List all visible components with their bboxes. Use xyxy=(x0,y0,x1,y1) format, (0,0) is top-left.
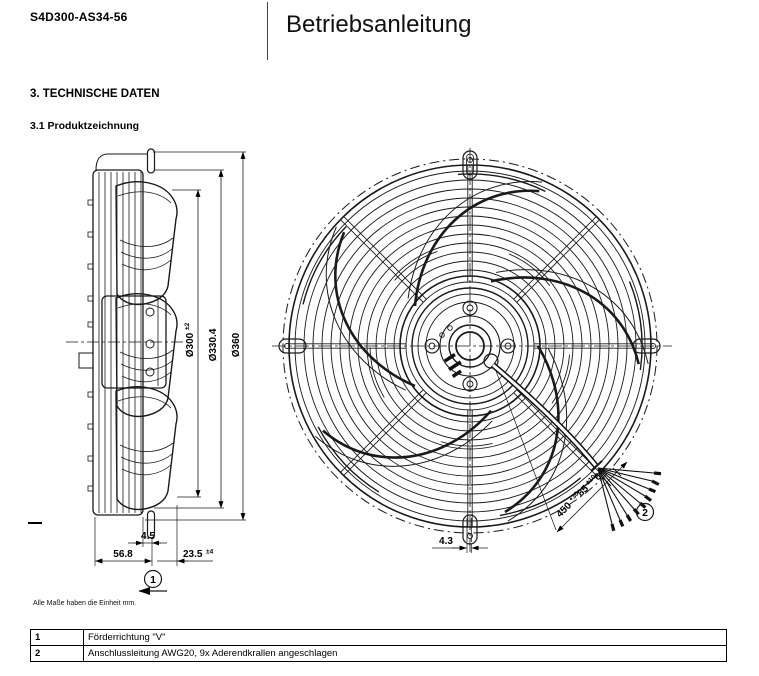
dim-dia330-label: Ø330.4 xyxy=(208,328,219,361)
callout-2-marker: 2 xyxy=(637,504,654,521)
dim-23-5-tolerance: ±4 xyxy=(206,549,214,556)
legend-row-text: Förderrichtung "V" xyxy=(84,630,727,646)
legend-row-number: 1 xyxy=(31,630,84,646)
side-view: Ø300 ±2 Ø330.4 Ø360 4.5 xyxy=(66,149,246,591)
dim-23-5-label: 23.5 xyxy=(183,549,203,560)
side-view-diameter-dimensions: Ø300 ±2 Ø330.4 Ø360 xyxy=(145,152,246,520)
callout-1-number: 1 xyxy=(150,574,156,586)
connection-cable xyxy=(484,354,661,531)
dim-56-8-label: 56.8 xyxy=(113,549,133,560)
dim-4-3: 4.3 xyxy=(432,536,488,553)
dim-4-5-label: 4.5 xyxy=(141,531,155,542)
legend-row-number: 2 xyxy=(31,646,84,662)
table-row: 2 Anschlussleitung AWG20, 9x Aderendkral… xyxy=(31,646,727,662)
callout-1-marker: 1 xyxy=(139,571,167,592)
units-note: Alle Maße haben die Einheit mm. xyxy=(33,600,136,607)
dim-dia300-tolerance: ±2 xyxy=(184,322,191,330)
dim-4-3-label: 4.3 xyxy=(439,536,453,547)
front-view: 4.3 450 +30 85 ±10 6 xyxy=(272,139,672,553)
manual-page: S4D300-AS34-56 Betriebsanleitung 3. TECH… xyxy=(0,0,759,676)
dim-dia360-label: Ø360 xyxy=(231,332,242,357)
callout-2-number: 2 xyxy=(642,507,648,519)
front-view-blades xyxy=(278,139,671,521)
legend-table: 1 Förderrichtung "V" 2 Anschlussleitung … xyxy=(30,629,727,662)
table-row: 1 Förderrichtung "V" xyxy=(31,630,727,646)
margin-dash xyxy=(28,522,42,524)
legend-row-text: Anschlussleitung AWG20, 9x Aderendkralle… xyxy=(84,646,727,662)
dim-dia300-label: Ø300 xyxy=(185,332,196,357)
product-drawing: Ø300 ±2 Ø330.4 Ø360 4.5 xyxy=(0,0,759,676)
